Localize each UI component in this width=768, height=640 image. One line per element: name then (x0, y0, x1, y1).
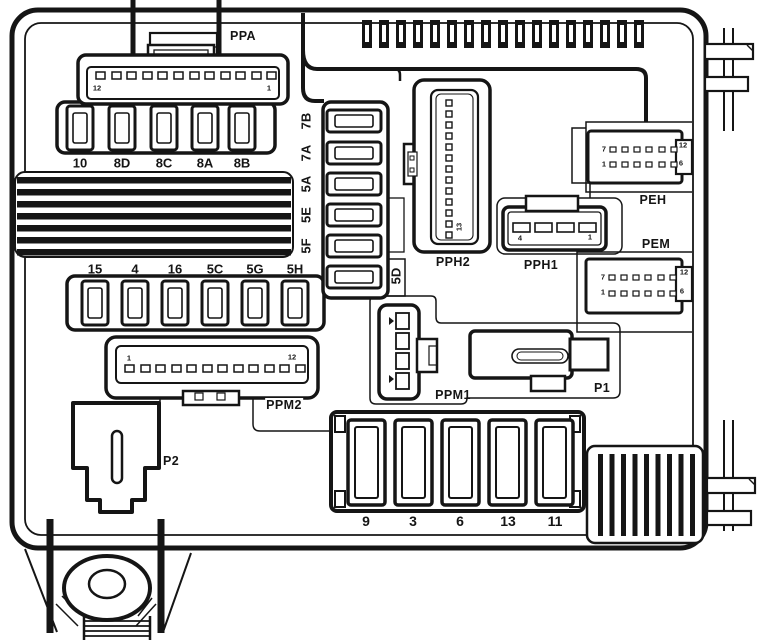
fuse-5A (327, 173, 381, 195)
pin-ppm2-12: 12 (288, 353, 296, 362)
fuse-label-8C: 8C (156, 156, 173, 171)
fuse-16 (162, 281, 188, 325)
fuse-label-5G: 5G (246, 262, 263, 277)
ribbed-block-left (15, 172, 293, 257)
fuse-box-diagram: PPA PPH2 PPH1 PEH PEM PPM1 PPM2 P1 P2 10… (0, 0, 768, 640)
pin-ppa-12: 12 (93, 84, 101, 93)
pin-pph1-1: 1 (588, 233, 592, 242)
fuse-label-8A: 8A (197, 156, 214, 171)
pin-pem-1: 1 (601, 288, 605, 297)
fuse-label-13: 13 (500, 513, 516, 529)
mounting-clip-bottom (707, 420, 755, 531)
pin-peh-7: 7 (602, 145, 606, 154)
fuse-7A (327, 142, 381, 164)
pin-pph1-4: 4 (518, 234, 522, 243)
fuse-5G (242, 281, 268, 325)
fuse-label-16: 16 (168, 262, 182, 277)
fuse-label-8B: 8B (234, 156, 251, 171)
fuse-8B (229, 106, 255, 150)
mounting-clip-top (705, 28, 753, 131)
fuse-3 (395, 420, 432, 505)
fuse-label-9: 9 (362, 513, 370, 529)
connector-pem (586, 259, 692, 313)
fuse-8D (109, 106, 135, 150)
label-p1: P1 (594, 381, 610, 395)
label-ppm1: PPM1 (435, 388, 471, 402)
pin-pem-12: 12 (680, 268, 688, 277)
fuse-6 (442, 420, 479, 505)
label-pph1: PPH1 (524, 258, 558, 272)
fuse-8A (192, 106, 218, 150)
fuse-9 (348, 420, 385, 505)
fuse-label-10: 10 (73, 156, 87, 171)
fuse-column (323, 102, 388, 298)
connector-ppa (78, 45, 288, 104)
label-ppm2: PPM2 (265, 398, 303, 412)
pin-pph2-13: 13 (455, 223, 464, 231)
fuse-label-7B: 7B (299, 113, 314, 130)
fuse-label-5D: 5D (389, 268, 404, 285)
fuse-row-top (57, 102, 275, 153)
pin-ppm2-1: 1 (127, 354, 131, 363)
fuse-row-mid (67, 276, 324, 330)
fuse-label-7A: 7A (299, 145, 314, 162)
relay-p1 (470, 331, 608, 391)
connector-peh (588, 131, 692, 183)
fuse-label-5F: 5F (299, 238, 314, 253)
fuse-5E (327, 204, 381, 226)
diagram-line-art (0, 0, 768, 640)
fuse-11 (536, 420, 573, 505)
fuse-label-8D: 8D (114, 156, 131, 171)
pin-ppa-1: 1 (267, 84, 271, 93)
fuse-15 (82, 281, 108, 325)
fuse-row-bottom (331, 412, 584, 511)
fuse-5F (327, 235, 381, 257)
ribbed-block-bottom-right (587, 446, 703, 543)
fuse-5C (202, 281, 228, 325)
fuse-13 (489, 420, 526, 505)
fuse-label-6: 6 (456, 513, 464, 529)
label-ppa: PPA (230, 29, 256, 43)
terminal-strip (362, 20, 644, 48)
relay-p2 (73, 403, 159, 512)
pin-pem-7: 7 (601, 273, 605, 282)
cable-grommet (25, 519, 191, 640)
fuse-label-15: 15 (88, 262, 102, 277)
fuse-10 (67, 106, 93, 150)
pin-peh-1: 1 (602, 160, 606, 169)
label-pem: PEM (642, 237, 670, 251)
fuse-label-4: 4 (131, 262, 138, 277)
fuse-label-3: 3 (409, 513, 417, 529)
connector-ppm2 (106, 337, 318, 405)
fuse-label-5H: 5H (287, 262, 304, 277)
pin-peh-12: 12 (679, 141, 687, 150)
label-peh: PEH (640, 193, 667, 207)
fuse-7B (327, 110, 381, 132)
connector-pph2 (404, 80, 490, 252)
fuse-8C (151, 106, 177, 150)
pin-peh-6: 6 (679, 159, 683, 168)
fuse-label-5E: 5E (299, 207, 314, 223)
fuse-4 (122, 281, 148, 325)
fuse-5D (327, 266, 381, 288)
pin-pem-6: 6 (680, 287, 684, 296)
fuse-label-11: 11 (548, 513, 563, 529)
label-p2: P2 (163, 454, 179, 468)
fuse-5H (282, 281, 308, 325)
connector-ppm1 (379, 305, 437, 399)
fuse-label-5A: 5A (299, 176, 314, 193)
fuse-label-5C: 5C (207, 262, 224, 277)
label-pph2: PPH2 (436, 255, 470, 269)
